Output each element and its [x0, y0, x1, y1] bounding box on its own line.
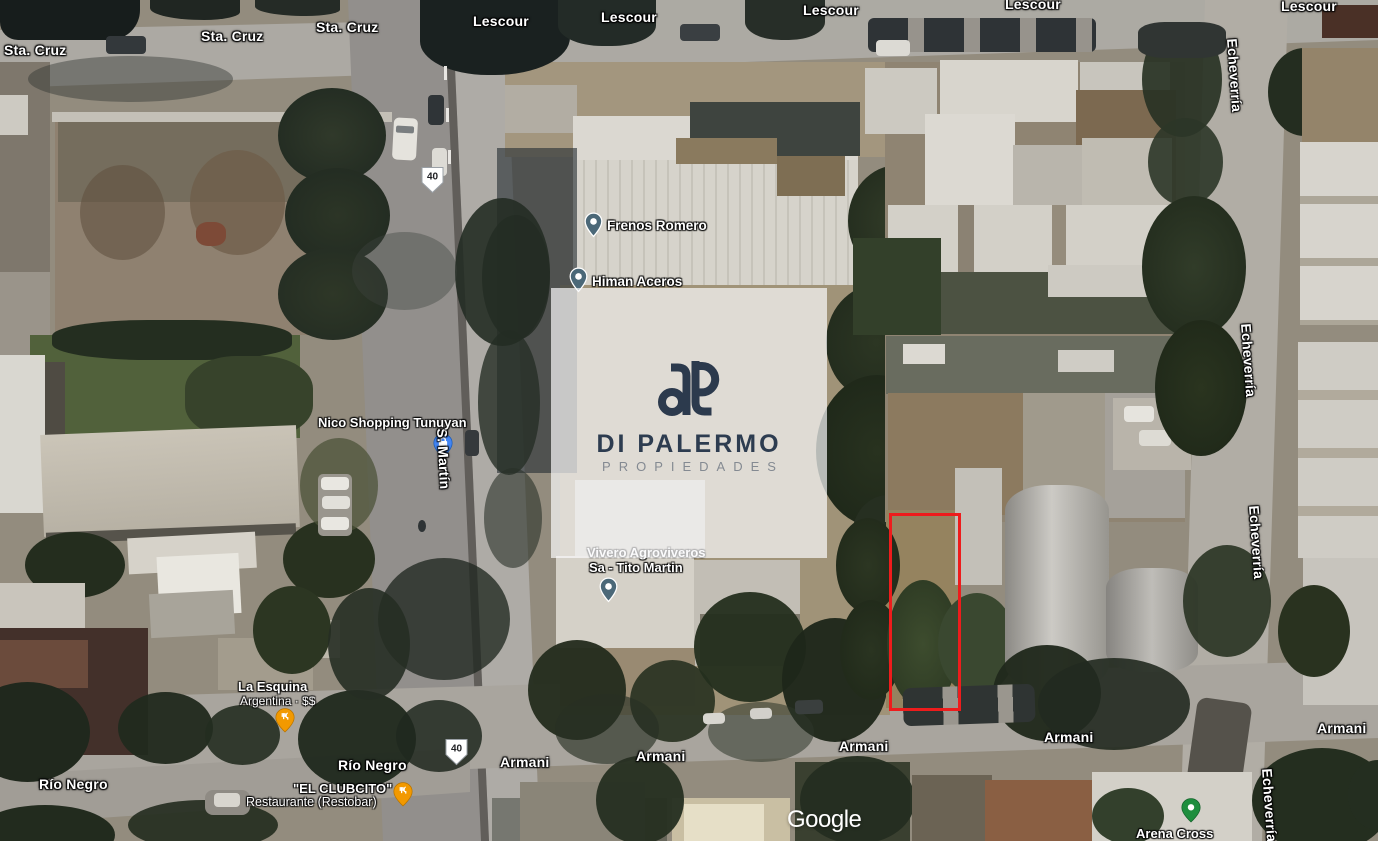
- svg-text:40: 40: [451, 744, 463, 755]
- svg-text:40: 40: [427, 172, 439, 183]
